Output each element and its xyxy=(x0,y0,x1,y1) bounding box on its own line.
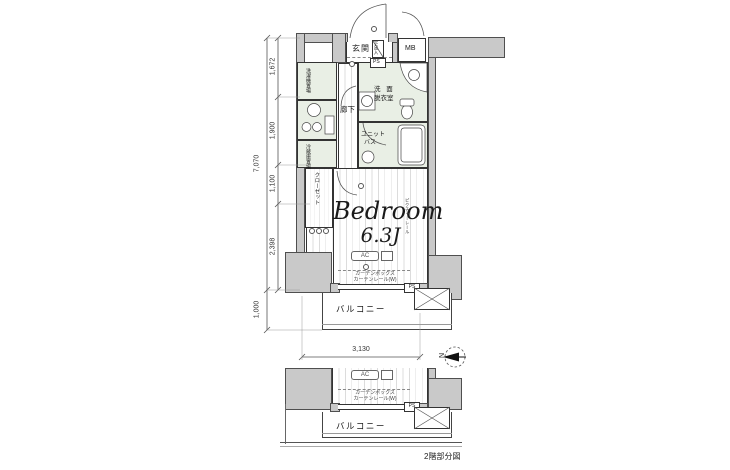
sub-balcony-inner-line xyxy=(322,433,452,434)
marker-circle xyxy=(358,183,364,189)
front-door-arc xyxy=(350,4,386,38)
hallway-label: 廊下 xyxy=(340,106,355,115)
bedroom-window xyxy=(338,284,410,290)
dim-tick xyxy=(264,287,270,293)
dim-tick xyxy=(275,35,281,41)
sub-wall-right-block xyxy=(428,378,462,410)
ps-top-label: PS xyxy=(373,60,380,66)
marker-circle xyxy=(316,228,322,234)
sub-window xyxy=(338,404,410,410)
shoe-box-label: 下足入 xyxy=(374,41,379,57)
ps-bottom-label: PS xyxy=(404,285,420,291)
bedroom-name-label: Bedroom xyxy=(333,198,428,226)
mb-label: MB xyxy=(405,45,416,53)
sub-evacuation-hatch xyxy=(414,407,450,429)
wall-bottom-left-block xyxy=(285,252,332,293)
marker-circle xyxy=(371,26,377,32)
wall-entrance-left xyxy=(332,33,346,63)
sub-ac-outlet xyxy=(381,370,393,380)
dim-seg4-label: 2,398 xyxy=(270,229,277,265)
evacuation-hatch xyxy=(414,288,450,310)
room-kitchen xyxy=(297,100,337,140)
sub-left-edge-line xyxy=(285,404,286,444)
floor-plan: N 玄関 MB 下足入 PS 廊下 洗 面 脱衣室 ユニット バス 洗濯機置場 … xyxy=(0,0,730,470)
sub-ground-line-2 xyxy=(280,446,462,447)
washroom-label-1: 洗 面 xyxy=(374,86,395,93)
sub-curtain-rail-label: カーテンレール(W) xyxy=(340,397,410,403)
closet-label: クローゼット xyxy=(313,172,319,226)
sub-ac-label: AC xyxy=(351,372,379,379)
sub-balcony-label: バルコニー xyxy=(336,422,386,432)
dim-tick xyxy=(275,201,281,207)
dim-seg3-label: 1,100 xyxy=(270,166,277,202)
unit-bath-label-1: ユニット xyxy=(361,132,385,139)
marker-circle xyxy=(349,61,355,67)
dim-seg2-label: 1,900 xyxy=(270,113,277,149)
north-label: N xyxy=(439,353,446,358)
bedroom-size-label: 6.3J xyxy=(333,224,428,247)
ac-outlet xyxy=(381,251,393,261)
entrance-label: 玄関 xyxy=(352,44,370,53)
washroom-label-2: 脱衣室 xyxy=(374,95,394,102)
balcony-label: バルコニー xyxy=(336,305,386,315)
balcony-inner-line xyxy=(322,324,452,325)
dim-total-label: 7,070 xyxy=(254,146,261,182)
dim-tick xyxy=(417,354,423,360)
dim-balcony-label: 1,000 xyxy=(254,292,261,328)
north-arrow-icon: N xyxy=(439,347,466,367)
sub-ground-line-1 xyxy=(280,442,462,443)
sub-wall-left-block xyxy=(285,368,332,410)
sub-ps-label: PS xyxy=(404,404,420,410)
ac-label: AC xyxy=(351,253,379,260)
curtain-rail-label: カーテンレール(W) xyxy=(340,278,410,284)
room-washing-machine xyxy=(297,62,337,100)
dim-tick xyxy=(264,35,270,41)
room-refrigerator xyxy=(297,140,337,168)
unit-bath-label-2: バス xyxy=(364,140,376,147)
dim-tick xyxy=(264,327,270,333)
dim-seg1-label: 1,672 xyxy=(270,49,277,85)
dim-tick xyxy=(275,94,281,100)
picture-rail-label: ピクチャーレール xyxy=(405,198,410,254)
sub-caption: 2階部分図 xyxy=(424,452,460,461)
marker-circle xyxy=(363,264,369,270)
dim-width-label: 3,130 xyxy=(341,346,381,353)
washing-machine-label: 洗濯機置場 xyxy=(305,68,311,86)
wall-top-right-band xyxy=(428,37,505,58)
marker-circle xyxy=(323,228,329,234)
shoebox-door-arc xyxy=(402,12,424,36)
wall-right xyxy=(428,57,436,258)
marker-circle xyxy=(309,228,315,234)
refrigerator-label: 冷蔵庫置場 xyxy=(305,144,311,162)
dim-tick xyxy=(275,287,281,293)
dim-tick xyxy=(299,354,305,360)
